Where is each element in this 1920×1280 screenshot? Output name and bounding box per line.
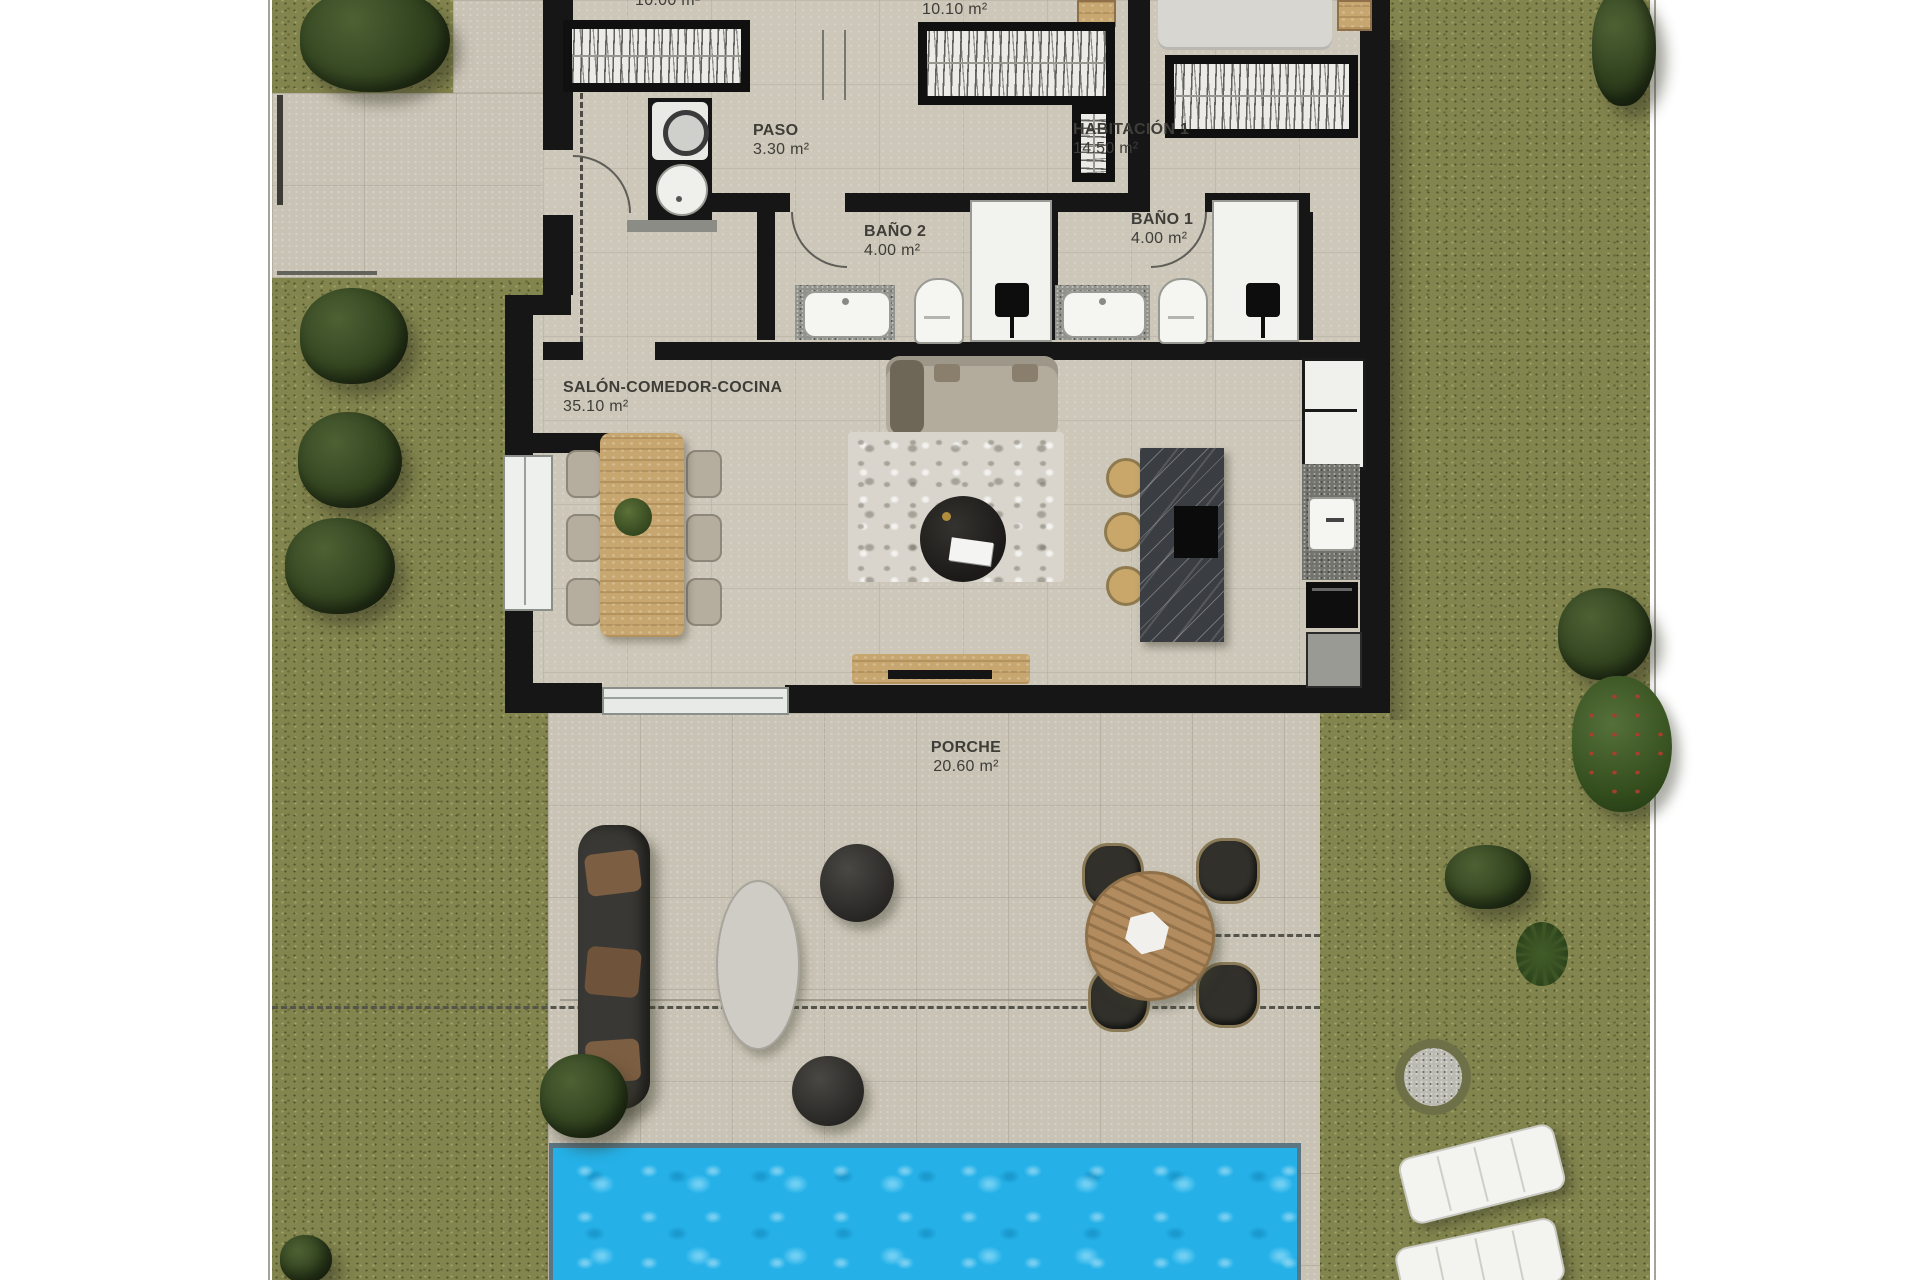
tall-grass-plant (1516, 922, 1568, 986)
room-area: 4.00 m² (1131, 229, 1193, 248)
swimming-pool (553, 1148, 1297, 1280)
kitchen-cabinet-split (1305, 409, 1357, 412)
dining-chair (686, 450, 722, 498)
wall (505, 608, 533, 688)
dashed-line-vertical (580, 93, 583, 342)
tv-console (852, 654, 1030, 684)
bano1-shower-fixture (1246, 283, 1280, 317)
wardrobe-dorm-b (918, 22, 1115, 105)
oven-handle (1312, 588, 1352, 591)
outdoor-chair (1196, 962, 1260, 1028)
coffee-table-deco (942, 512, 951, 521)
wall (710, 193, 790, 212)
room-area: 14.50 m² (1073, 139, 1189, 158)
dining-chair (566, 578, 602, 626)
room-label-habitacion1: HABITACIÓN 1 14.50 m² (1073, 120, 1189, 158)
wall (505, 683, 602, 713)
kitchen-faucet (1326, 518, 1344, 522)
wardrobe-hangers (572, 29, 741, 83)
nightstand (1337, 0, 1372, 31)
outdoor-sofa-cushion (584, 946, 642, 999)
wall (543, 342, 583, 360)
wardrobe-hangers (927, 31, 1106, 96)
dining-chair (566, 514, 602, 562)
flowering-bush-right (1572, 676, 1672, 812)
sofa-pillow (934, 364, 960, 382)
wall (785, 685, 1390, 713)
plot-boundary-right (1654, 0, 1656, 1280)
outdoor-chair (1196, 838, 1260, 904)
sofa-throw (890, 360, 924, 434)
tree (285, 518, 395, 614)
room-area: 10.10 m² (922, 0, 988, 19)
house-shadow (1390, 40, 1416, 720)
bano1-toilet-lid (1168, 316, 1194, 319)
tree (300, 288, 408, 384)
slider-door-west-line (524, 457, 526, 605)
bano1-shower (1212, 200, 1299, 342)
laundry-shelf (627, 220, 717, 232)
slider-door-porch (602, 687, 789, 715)
driveway-paving-arm (453, 0, 543, 93)
bano2-faucet (842, 298, 849, 305)
water-heater (656, 164, 708, 216)
room-label-salon: SALÓN-COMEDOR-COCINA 35.10 m² (563, 378, 782, 416)
room-label-bano1: BAÑO 1 4.00 m² (1131, 210, 1193, 248)
wall (505, 295, 533, 455)
outdoor-side-table (716, 880, 800, 1050)
floor-plan-canvas: 10.00 m² 10.10 m² HABITACIÓN 1 14.50 m² … (0, 0, 1920, 1280)
bush-terrace-right (1445, 845, 1531, 909)
room-name: BAÑO 1 (1131, 210, 1193, 229)
door-jamb (822, 30, 824, 100)
fence-line-h (277, 271, 377, 275)
room-name: PASO (753, 121, 809, 140)
dashed-line-porch (272, 1006, 1320, 1009)
washing-machine-door (663, 110, 709, 156)
room-area: 35.10 m² (563, 397, 782, 416)
room-area: 20.60 m² (900, 757, 1032, 776)
tv-screen (888, 670, 992, 679)
room-name: PORCHE (900, 738, 1032, 757)
pouf (820, 844, 894, 922)
driveway-paving (272, 93, 543, 278)
dining-chair (686, 578, 722, 626)
wardrobe-hangers (1174, 64, 1349, 129)
slider-door-west (503, 455, 553, 611)
pouf (792, 1056, 864, 1126)
bano1-faucet (1099, 298, 1106, 305)
bano2-toilet (914, 278, 964, 344)
room-label-dorm-b: 10.10 m² (922, 0, 988, 19)
bano2-shower-stem (1010, 315, 1014, 338)
bano2-toilet-lid (924, 316, 950, 319)
bush-right (1558, 588, 1652, 680)
room-label-paso: PASO 3.30 m² (753, 121, 809, 159)
kitchen-cabinets (1302, 358, 1366, 470)
plant-poolside (540, 1054, 628, 1138)
room-label-dorm-a: 10.00 m² (635, 0, 701, 10)
wall (543, 215, 573, 295)
water-heater-dot (676, 196, 682, 202)
outdoor-sofa-cushion (584, 849, 643, 897)
room-name: SALÓN-COMEDOR-COCINA (563, 378, 782, 397)
room-area: 4.00 m² (864, 241, 926, 260)
grass-tuft (280, 1235, 332, 1280)
bano1-shower-stem (1261, 315, 1265, 338)
wardrobe-habitacion1 (1165, 55, 1358, 138)
bar-stool (1104, 512, 1144, 552)
door-jamb (844, 30, 846, 100)
wall (1360, 0, 1390, 713)
island-induction-hob (1174, 506, 1218, 558)
room-label-porche: PORCHE 20.60 m² (900, 738, 1032, 776)
plot-boundary-left (268, 0, 270, 1280)
fence-line (277, 95, 283, 205)
slider-door-porch-line (604, 697, 783, 699)
sofa-pillow (1012, 364, 1038, 382)
kitchen-sink (1308, 497, 1356, 551)
wardrobe-dorm-a (563, 20, 750, 92)
dining-chair (566, 450, 602, 498)
tree (298, 412, 402, 508)
wall (1128, 0, 1150, 193)
table-plant (614, 498, 652, 536)
room-label-bano2: BAÑO 2 4.00 m² (864, 222, 926, 260)
bano1-toilet (1158, 278, 1208, 344)
room-area: 3.30 m² (753, 140, 809, 159)
bed-habitacion1 (1158, 0, 1332, 50)
room-name: BAÑO 2 (864, 222, 926, 241)
wall (757, 212, 775, 340)
room-name: HABITACIÓN 1 (1073, 120, 1189, 139)
dining-chair (686, 514, 722, 562)
room-area: 10.00 m² (635, 0, 701, 10)
bano2-shower-fixture (995, 283, 1029, 317)
dishwasher (1306, 632, 1362, 688)
wall (543, 112, 573, 150)
dining-table (600, 433, 684, 637)
gravel-circle (1404, 1048, 1462, 1106)
